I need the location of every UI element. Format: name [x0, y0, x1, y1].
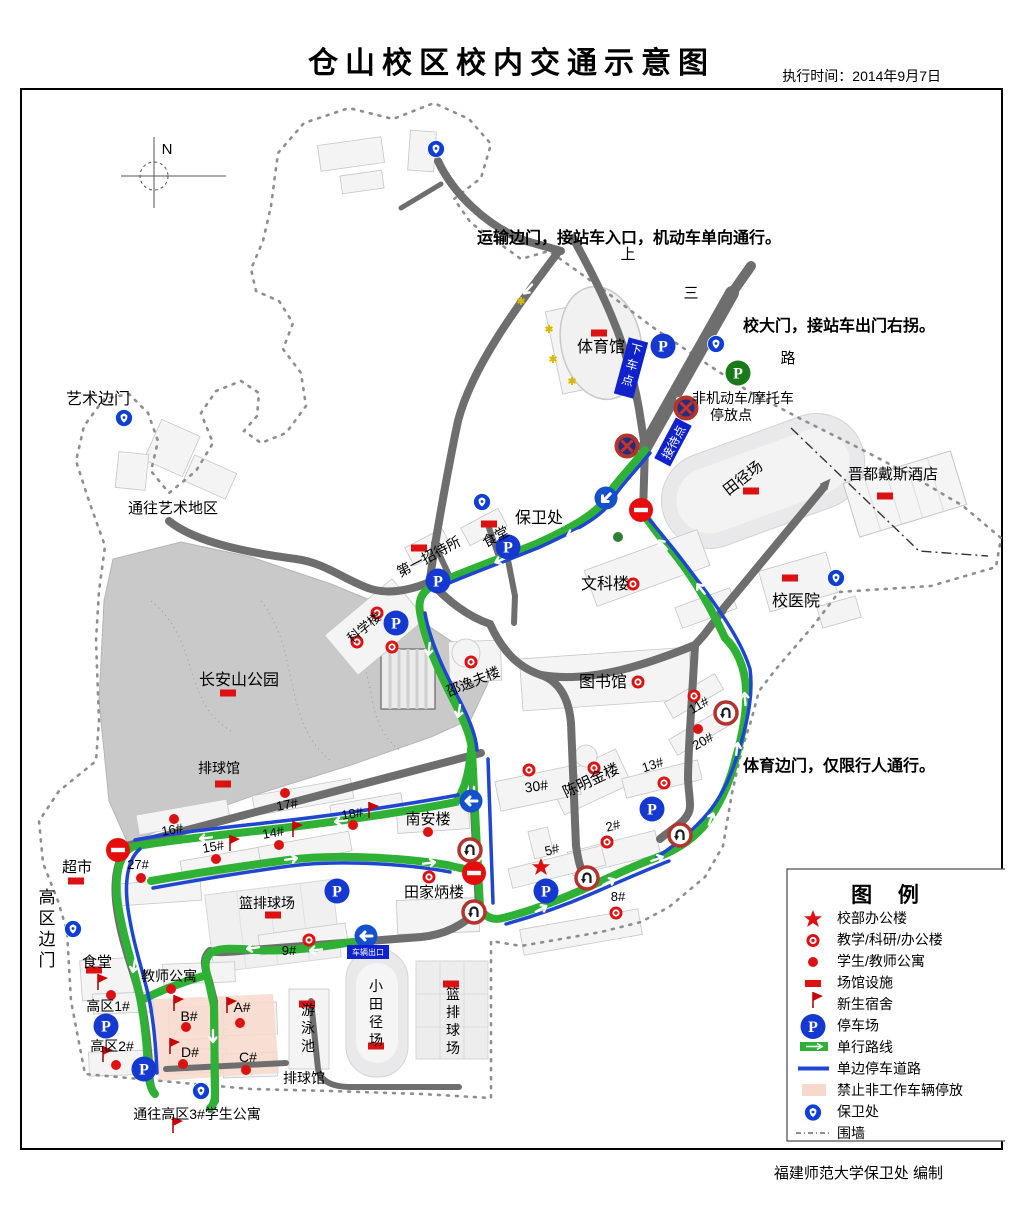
- apartment-dot-icon: [178, 1059, 188, 1069]
- apartment-dot-icon: [211, 854, 221, 864]
- legend-item: 保卫处: [805, 1104, 880, 1122]
- side-parking-road: [488, 759, 493, 903]
- marker-shield: [65, 921, 82, 938]
- legend-item-label: 停车场: [837, 1018, 879, 1034]
- map-label: 15#: [201, 837, 226, 856]
- ring-dot: [692, 694, 695, 697]
- marker-p: P: [384, 611, 409, 636]
- parking-letter: P: [332, 884, 342, 901]
- legend-item-label: 场馆设施: [837, 975, 893, 991]
- marker-bar: [782, 575, 798, 582]
- marker-shield: [474, 494, 491, 511]
- marker-nostop: [617, 436, 638, 457]
- no-uturn-icon: [463, 901, 485, 923]
- marker-nouturn: [715, 702, 737, 724]
- marker-bar: [591, 330, 607, 337]
- map-label: 14#: [261, 823, 286, 842]
- ring-dot: [469, 660, 472, 663]
- map-label: 教师公寓: [141, 968, 197, 984]
- no-entry-bar: [467, 871, 481, 875]
- map-label: 高区2#: [90, 1038, 134, 1054]
- marker-bar: [68, 878, 84, 885]
- marker-nouturn: [669, 824, 691, 846]
- shield-dot: [123, 416, 126, 419]
- shield-dot: [812, 1111, 815, 1114]
- marker-dot: [211, 854, 221, 864]
- marker-ring: [658, 777, 671, 790]
- campus-map: PPPPPPPPPP下车点接待点车辆出口运输边门，接站车入口，机动车单向通行。校…: [22, 90, 1005, 1152]
- marker-nouturn: [459, 839, 481, 861]
- map-label: 三: [683, 285, 698, 302]
- apartment-dot-icon: [274, 840, 284, 850]
- tree-icon: [613, 532, 623, 542]
- map-label: 高区边门: [39, 888, 56, 970]
- marker-bar: [743, 488, 759, 495]
- page: 仓山校区校内交通示意图 执行时间：2014年9月7日 PPPPPPPPPP下车点…: [0, 0, 1023, 1216]
- no-uturn-icon: [669, 824, 691, 846]
- map-label: 保卫处: [515, 509, 563, 527]
- marker-bar: [220, 690, 236, 697]
- marker-dot: [166, 984, 176, 994]
- map-label: 文科楼: [581, 575, 629, 593]
- ring-dot: [614, 911, 617, 914]
- venue-bar-icon: [591, 330, 607, 337]
- parking-letter: P: [808, 1019, 818, 1036]
- direction-arrow: [161, 925, 168, 937]
- parking-letter: P: [658, 339, 668, 356]
- shield-dot: [435, 147, 438, 150]
- venue-bar-icon: [743, 488, 759, 495]
- marker-p: P: [426, 569, 451, 594]
- shield-dot: [715, 342, 718, 345]
- map-label: 通往高区3#学生公寓: [133, 1106, 261, 1122]
- route-tag: 车辆出口: [347, 945, 389, 959]
- ring-dot: [527, 768, 530, 771]
- marker-ring: [601, 836, 614, 849]
- marker-bar: [481, 521, 497, 528]
- marker-sign_arrow: [595, 487, 618, 510]
- marker-p: P: [534, 879, 559, 904]
- map-label: 高区1#: [86, 998, 130, 1014]
- shield-dot: [481, 500, 484, 503]
- marker-ring: [523, 764, 536, 777]
- route-tag-label: 车辆出口: [352, 947, 384, 957]
- credit: 福建师范大学保卫处 编制: [774, 1162, 943, 1183]
- marker-nouturn: [463, 901, 485, 923]
- map-label: 排球馆: [198, 760, 240, 776]
- compass: [121, 137, 226, 208]
- ring-dot: [605, 840, 608, 843]
- marker-sign_arrow: [460, 790, 483, 813]
- ring-dot: [636, 680, 639, 683]
- building-footprint: [340, 170, 384, 194]
- venue-bar-icon: [481, 521, 497, 528]
- map-frame: PPPPPPPPPP下车点接待点车辆出口运输边门，接站车入口，机动车单向通行。校…: [20, 88, 1003, 1150]
- venue-bar-icon: [220, 690, 236, 697]
- apartment-dot-icon: [166, 984, 176, 994]
- map-label: 南安楼: [405, 811, 450, 828]
- map-label: 晋都戴斯酒店: [848, 466, 938, 483]
- map-label: 30#: [524, 776, 550, 795]
- marker-sign_arrow: [355, 925, 378, 948]
- marker-ring: [632, 676, 645, 689]
- marker-ring: [303, 934, 316, 947]
- ring-dot: [390, 645, 393, 648]
- map-label: 运输边门，接站车入口，机动车单向通行。: [477, 228, 781, 247]
- marker-ring: [386, 641, 399, 654]
- marker-noentry: [462, 861, 486, 885]
- map-label: 17#: [275, 795, 300, 814]
- legend-item-label: 保卫处: [837, 1104, 879, 1120]
- marker-tree: [613, 532, 623, 542]
- marker-flag: [230, 835, 240, 851]
- marker-dot: [274, 840, 284, 850]
- apartment-dot-icon: [111, 1060, 121, 1070]
- map-label: 停放点: [710, 407, 752, 423]
- map-label: 排球馆: [283, 1070, 325, 1086]
- parking-letter: P: [139, 1062, 149, 1079]
- ring-dot: [631, 582, 634, 585]
- marker-noentry: [629, 498, 653, 522]
- legend-item-label: 校部办公楼: [837, 910, 907, 926]
- no-uturn-icon: [576, 867, 598, 889]
- venue-bar-icon: [215, 781, 231, 788]
- map-label: 艺术边门: [66, 390, 130, 408]
- map-label: 上: [620, 246, 635, 263]
- map-label: 游泳池: [301, 1002, 315, 1054]
- map-label: 长安山公园: [199, 671, 279, 689]
- building-footprint: [115, 452, 149, 491]
- road: [401, 184, 441, 208]
- small-athletic-field: [346, 949, 408, 1077]
- ring-dot: [427, 875, 430, 878]
- shield-dot: [72, 927, 75, 930]
- venue-bar-icon: [68, 878, 84, 885]
- marker-dot: [808, 957, 818, 967]
- map-label: 超市: [62, 859, 92, 876]
- legend-pink-swatch: [802, 1084, 826, 1096]
- legend-item-label: 单行路线: [837, 1039, 893, 1055]
- parking-letter: P: [647, 802, 657, 819]
- ring-dot: [811, 939, 814, 942]
- marker-nouturn: [576, 867, 598, 889]
- legend-item-label: 教学/科研/办公楼: [837, 932, 943, 948]
- map-label: 2#: [604, 816, 622, 834]
- legend-item-label: 禁止非工作车辆停放: [837, 1082, 963, 1098]
- building-footprint: [584, 530, 710, 607]
- building-footprint: [183, 455, 236, 499]
- marker-bar: [215, 781, 231, 788]
- striped-facility: [381, 649, 435, 709]
- map-label: D#: [181, 1044, 199, 1060]
- map-label: 体育边门，仅限行人通行。: [743, 756, 935, 775]
- marker-p: P: [132, 1057, 157, 1082]
- map-label: 田家炳楼: [404, 884, 464, 901]
- shield-dot: [835, 576, 838, 579]
- map-label: 非机动车/摩托车: [692, 390, 794, 406]
- legend-item-label: 学生/教师公寓: [837, 953, 925, 969]
- legend-title: 图 例: [851, 883, 929, 907]
- map-label: B#: [180, 1008, 197, 1024]
- parking-letter: P: [503, 540, 513, 557]
- marker-shield: [708, 336, 725, 353]
- marker-p: P: [801, 1014, 826, 1039]
- marker-p: P: [94, 1014, 119, 1039]
- parking-letter: P: [541, 884, 551, 901]
- marker-p: P: [325, 879, 350, 904]
- parking-letter: P: [101, 1019, 111, 1036]
- marker-ring: [610, 907, 623, 920]
- road: [732, 266, 751, 293]
- marker-p_green: P: [726, 361, 751, 386]
- no-uturn-icon: [715, 702, 737, 724]
- map-label: A#: [233, 999, 250, 1015]
- exec-time: 执行时间：2014年9月7日: [782, 66, 941, 86]
- map-label: 9#: [282, 943, 297, 958]
- parking-letter: P: [433, 574, 443, 591]
- marker-p: P: [640, 797, 665, 822]
- road: [645, 293, 732, 447]
- venue-bar-icon: [805, 980, 821, 987]
- marker-dot: [111, 1060, 121, 1070]
- marker-bar: [265, 912, 281, 919]
- marker-dot: [136, 873, 146, 883]
- marker-ring: [807, 934, 820, 947]
- ring-dot: [307, 938, 310, 941]
- marker-shield: [193, 1083, 210, 1100]
- marker-shield: [805, 1104, 822, 1121]
- marker-dot: [423, 827, 433, 837]
- apartment-dot-icon: [136, 873, 146, 883]
- apartment-dot-icon: [808, 957, 818, 967]
- map-label: 路: [780, 350, 795, 367]
- marker-bar: [877, 493, 893, 500]
- marker-ring: [423, 871, 436, 884]
- legend-item-label: 新生宿舍: [837, 996, 893, 1012]
- map-label: 8#: [611, 889, 626, 904]
- venue-bar-icon: [782, 575, 798, 582]
- no-entry-bar: [111, 848, 125, 852]
- marker-dot: [178, 1059, 188, 1069]
- map-label: 体育馆: [577, 338, 625, 356]
- ring-dot: [662, 781, 665, 784]
- road: [507, 555, 515, 623]
- map-label: 图书馆: [579, 673, 627, 691]
- map-label: N: [162, 141, 173, 158]
- no-entry-bar: [634, 508, 648, 512]
- legend-item-label: 单边停车道路: [837, 1061, 921, 1077]
- shield-dot: [200, 1089, 203, 1092]
- apartment-dot-icon: [241, 1065, 251, 1075]
- map-label: 校大门，接站车出门右拐。: [743, 316, 935, 335]
- marker-shield: [428, 141, 445, 158]
- parking-letter: P: [733, 366, 743, 383]
- apartment-dot-icon: [235, 1018, 245, 1028]
- parking-letter: P: [391, 616, 401, 633]
- marker-shield: [828, 570, 845, 587]
- marker-dot: [235, 1018, 245, 1028]
- marker-dot: [241, 1065, 251, 1075]
- map-label: 27#: [127, 857, 149, 872]
- marker-p: P: [651, 334, 676, 359]
- map-label: 通往艺术地区: [128, 500, 218, 517]
- apartment-dot-icon: [423, 827, 433, 837]
- venue-bar-icon: [265, 912, 281, 919]
- marker-ring: [465, 656, 478, 669]
- map-label: 校医院: [772, 592, 820, 610]
- venue-bar-icon: [877, 493, 893, 500]
- building-footprint: [318, 137, 385, 172]
- map-label: 篮排球场: [239, 895, 295, 911]
- legend-item-label: 围墙: [837, 1125, 865, 1141]
- marker-bar: [805, 980, 821, 987]
- map-label: 食堂: [82, 954, 112, 971]
- no-uturn-icon: [459, 839, 481, 861]
- map-label: C#: [239, 1049, 257, 1065]
- marker-shield: [116, 410, 133, 427]
